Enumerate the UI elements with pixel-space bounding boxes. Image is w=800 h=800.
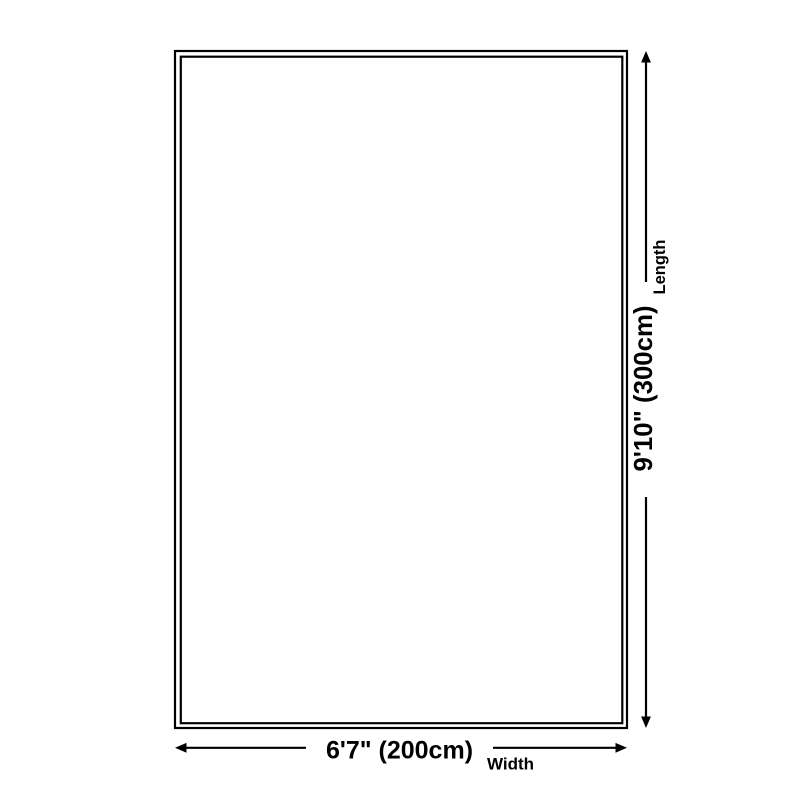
- svg-text:Width: Width: [487, 755, 534, 774]
- svg-text:Length: Length: [651, 240, 669, 295]
- svg-text:9'10" (300cm): 9'10" (300cm): [630, 305, 658, 471]
- svg-text:6'7" (200cm): 6'7" (200cm): [326, 737, 473, 765]
